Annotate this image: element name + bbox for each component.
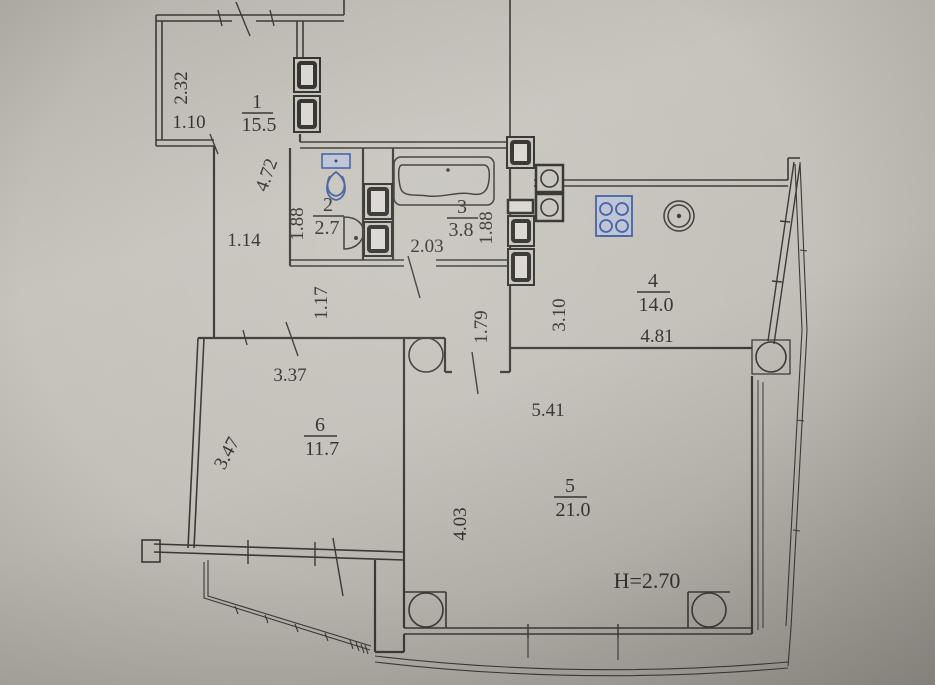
dim-room6-side: 3.47 — [210, 434, 244, 473]
balcony-door-tick — [333, 538, 343, 596]
dim-hall-wall: 4.72 — [251, 156, 282, 194]
dim-entry-side: 2.32 — [171, 71, 192, 104]
room-4-area: 14.0 — [639, 294, 674, 316]
floor-plan-photo: 2.32 1.10 4.72 1.14 1.88 2.03 1.88 1.17 … — [0, 0, 935, 685]
room-6-area: 11.7 — [305, 438, 339, 460]
entry-door-tick — [236, 2, 250, 36]
door-openings — [210, 2, 478, 596]
dim-bath-front: 2.03 — [410, 236, 443, 257]
dim-corridor-mid: 1.79 — [471, 310, 492, 343]
dim-kitchen-side: 3.10 — [549, 298, 570, 331]
room-1-label: 1 15.5 — [242, 91, 277, 136]
kitchen-window — [768, 162, 800, 344]
room-1-number: 1 — [252, 91, 262, 113]
shaft-group-a — [294, 58, 320, 132]
room-1-area: 15.5 — [242, 114, 277, 136]
vent-grilles — [536, 165, 563, 221]
dimension-ticks-top — [218, 10, 274, 26]
column-kitchen — [756, 342, 786, 372]
room-4-label: 4 14.0 — [637, 270, 674, 316]
balcony-bottom-ties — [528, 634, 618, 660]
bathroom-door-tick — [408, 256, 420, 298]
room-2-number: 2 — [323, 194, 333, 216]
balcony-right-railing — [786, 162, 807, 628]
shaft-group-b — [507, 137, 534, 285]
balcony-left-railing — [204, 560, 371, 650]
stove-icon — [596, 196, 632, 236]
balcony-right-hatches — [788, 250, 807, 666]
dim-room6-front: 3.37 — [273, 365, 306, 386]
labels: 2.32 1.10 4.72 1.14 1.88 2.03 1.88 1.17 … — [171, 71, 680, 593]
floor-plan-drawing: 2.32 1.10 4.72 1.14 1.88 2.03 1.88 1.17 … — [0, 0, 935, 685]
dim-entry-front: 1.10 — [172, 112, 205, 133]
room-5-area: 21.0 — [556, 499, 591, 521]
room-3-number: 3 — [457, 196, 467, 218]
column-room5-left — [409, 593, 443, 627]
room-4-number: 4 — [648, 270, 658, 292]
columns — [404, 338, 790, 628]
column-hall — [409, 338, 443, 372]
wall-end-cap — [142, 540, 160, 562]
room-2-label: 2 2.7 — [313, 194, 344, 239]
dim-room5-front: 5.41 — [531, 400, 564, 421]
room-5-label: 5 21.0 — [554, 475, 591, 521]
room-3-label: 3 3.8 — [447, 196, 478, 241]
wall-detail-lines — [758, 380, 763, 630]
balcony-bottom-railing — [375, 656, 788, 676]
dim-wc-side-left: 1.88 — [287, 207, 308, 240]
room-6-number: 6 — [315, 414, 325, 436]
room-5-number: 5 — [565, 475, 575, 497]
room5-door-tick — [472, 352, 478, 394]
dim-room5-side: 4.03 — [450, 507, 471, 540]
bathtub-icon — [394, 157, 494, 205]
dim-hall-passage: 1.14 — [227, 230, 261, 251]
column-room5-right — [692, 593, 726, 627]
kitchen-sink-icon — [664, 201, 694, 231]
shaft-group-c — [364, 184, 392, 256]
room-3-area: 3.8 — [449, 219, 474, 241]
washbasin-icon — [344, 217, 364, 249]
column-notch-kitchen — [752, 340, 790, 374]
column-notch-right — [688, 592, 730, 628]
dim-kitchen-front: 4.81 — [640, 326, 673, 347]
column-notch-left — [404, 592, 446, 628]
room-2-area: 2.7 — [315, 217, 340, 239]
ceiling-height-note: H=2.70 — [614, 568, 681, 593]
room-6-label: 6 11.7 — [304, 414, 339, 460]
dim-bath-side-right: 1.88 — [476, 211, 497, 244]
dim-corridor-lower: 1.17 — [311, 286, 332, 319]
balcony-left-hatches — [235, 606, 368, 654]
